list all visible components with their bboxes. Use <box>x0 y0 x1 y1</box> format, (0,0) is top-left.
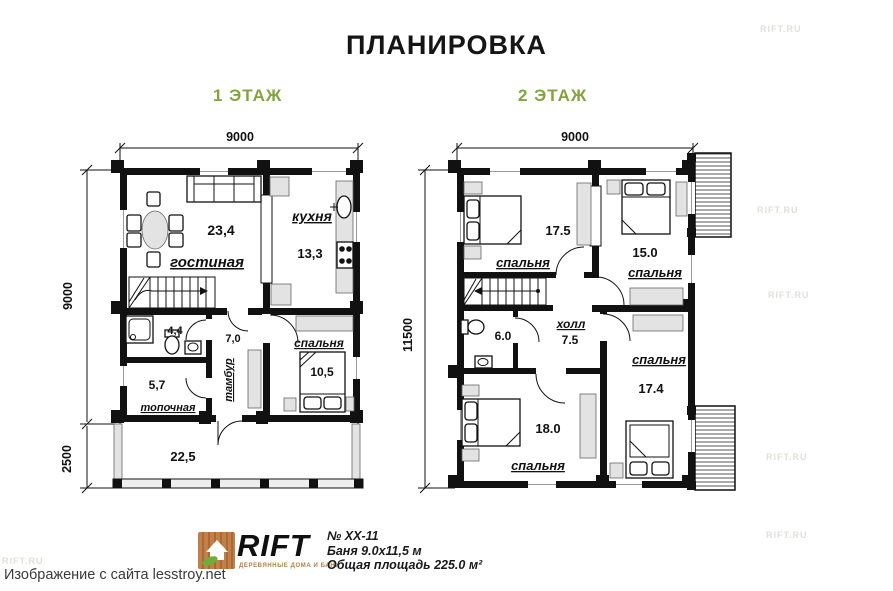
bedroom1-label: спальня <box>496 255 550 270</box>
floor1-header: 1 ЭТАЖ <box>213 86 282 106</box>
kitchen-sink <box>337 196 351 218</box>
watermark: RIFT.RU <box>768 290 810 300</box>
rift-logo-icon <box>198 532 235 569</box>
project-info: № ХХ-11 Баня 9.0х11,5 м Общая площадь 22… <box>327 529 482 573</box>
fridge <box>270 177 289 196</box>
floor-plan-page: ПЛАНИРОВКА 1 ЭТАЖ 2 ЭТАЖ 9000 9000 2500 <box>0 0 893 591</box>
bedroom-area: 10,5 <box>310 365 334 379</box>
bedroom-label: спальня <box>294 336 344 350</box>
bedroom3-label: спальня <box>632 352 686 367</box>
floor1-dim-terrace: 2500 <box>60 445 74 473</box>
boiler-label: топочная <box>141 402 196 414</box>
watermark: RIFT.RU <box>760 24 802 34</box>
floor2-header: 2 ЭТАЖ <box>518 86 587 106</box>
stove <box>337 242 353 268</box>
bedroom2-area: 15.0 <box>632 245 657 260</box>
project-number: № ХХ-11 <box>327 529 482 544</box>
terrace-area: 22,5 <box>170 449 195 464</box>
living-area: 23,4 <box>207 222 234 238</box>
building-size: Баня 9.0х11,5 м <box>327 544 482 559</box>
living-label: гостиная <box>170 254 244 271</box>
wardrobe <box>296 316 353 331</box>
rift-brand: RIFT <box>237 528 310 564</box>
floor1-doors <box>186 311 298 445</box>
floor2-plan: 9000 11500 <box>395 118 745 503</box>
rift-brand-subtitle: ДЕРЕВЯННЫЕ ДОМА И БАНИ <box>239 563 340 569</box>
hall-label: холл <box>556 317 586 331</box>
page-title: ПЛАНИРОВКА <box>0 30 893 61</box>
balcony-top <box>695 153 731 237</box>
kitchen-label: кухня <box>292 208 332 224</box>
floor2-dim-left: 11500 <box>401 318 415 352</box>
bedroom2-label: спальня <box>628 265 682 280</box>
wardrobe <box>577 183 591 245</box>
balcony-bottom <box>695 406 735 490</box>
floor1-terrace <box>113 422 363 488</box>
floor1-plan: 9000 9000 2500 <box>55 118 400 503</box>
kitchen-area: 13,3 <box>297 246 322 261</box>
floor1-stairs <box>129 277 215 308</box>
watermark: RIFT.RU <box>766 530 808 540</box>
boiler-area: 5,7 <box>149 378 166 392</box>
bedroom4-label: спальня <box>511 458 565 473</box>
floor1-dim-top: 9000 <box>226 130 254 144</box>
bedroom3-area: 17.4 <box>638 381 664 396</box>
floor1-dim-left: 9000 <box>61 282 75 310</box>
bath-area: 4,4 <box>167 325 183 337</box>
source-caption: Изображение с сайта lesstroy.net <box>4 567 226 583</box>
toilet <box>461 320 468 334</box>
tambour-label: тамбур <box>223 358 235 402</box>
watermark: RIFT.RU <box>757 205 799 215</box>
bath2-area: 6.0 <box>495 329 512 343</box>
bedroom4-area: 18.0 <box>535 421 560 436</box>
tambour-area: 7,0 <box>225 333 240 345</box>
wardrobe <box>580 394 596 458</box>
watermark: RIFT.RU <box>766 452 808 462</box>
total-area: Общая площадь 225.0 м² <box>327 558 482 573</box>
hall-area: 7.5 <box>562 333 579 347</box>
bedroom1-area: 17.5 <box>545 223 570 238</box>
dining-table <box>142 211 168 249</box>
floor2-dim-top: 9000 <box>561 130 589 144</box>
watermark: RIFT.RU <box>2 556 44 566</box>
floor2-stairs <box>464 278 546 305</box>
